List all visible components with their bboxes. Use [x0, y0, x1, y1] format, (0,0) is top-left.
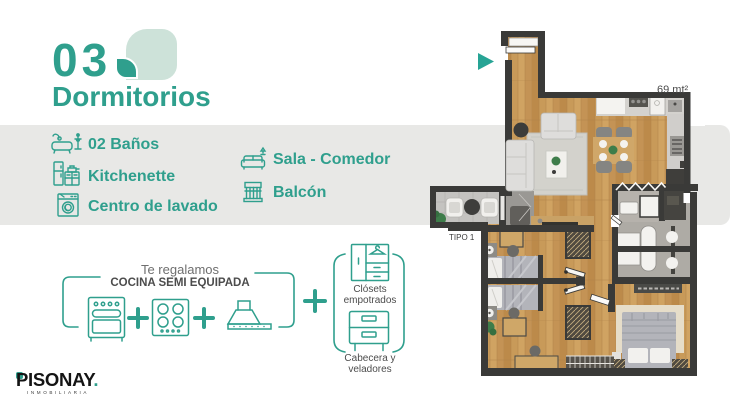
svg-text:TIPO 1: TIPO 1: [449, 233, 475, 242]
svg-text:69 mt²: 69 mt²: [657, 84, 689, 96]
